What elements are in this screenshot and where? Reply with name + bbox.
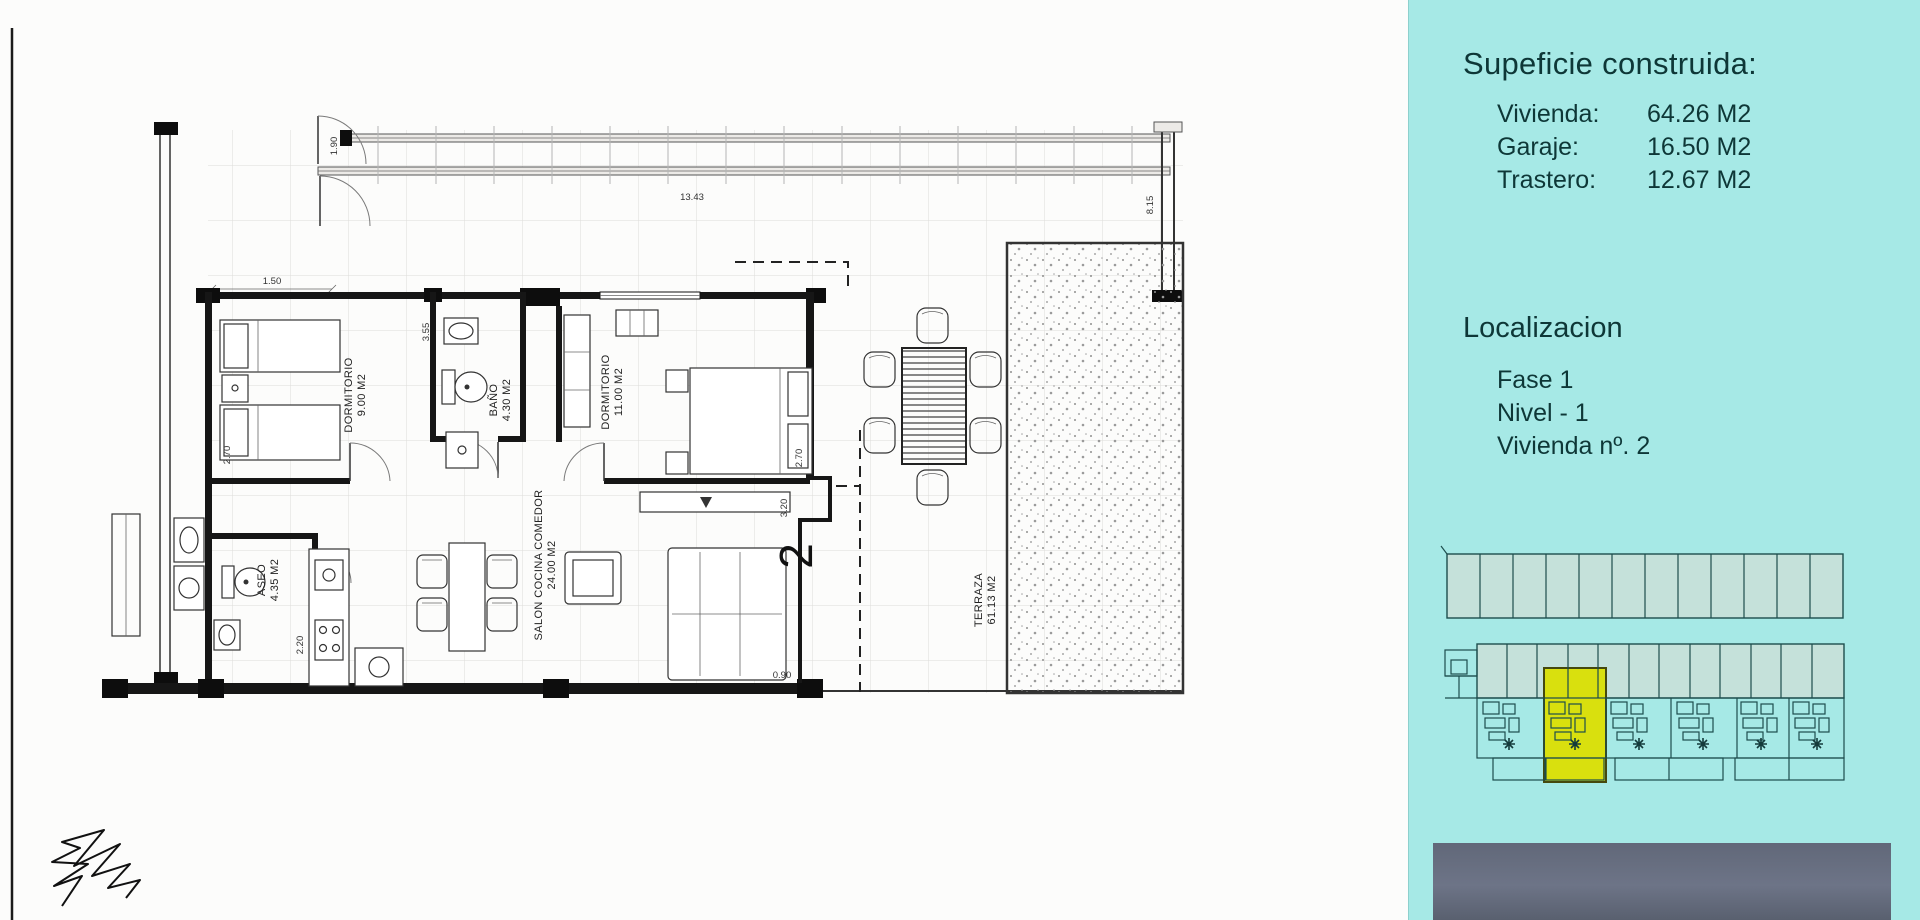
pool-area bbox=[1007, 243, 1183, 693]
floorplan-drawing: DORMITORIO 9.00 M2 BAÑO 4.30 M2 DORMITOR… bbox=[0, 0, 1410, 920]
sketch-scribble bbox=[52, 830, 140, 906]
dim-1-50: 1.50 bbox=[263, 276, 282, 287]
page: DORMITORIO 9.00 M2 BAÑO 4.30 M2 DORMITOR… bbox=[0, 0, 1920, 920]
surface-row-garaje: Garaje: 16.50 M2 bbox=[1497, 131, 1751, 164]
photo-thumbnail bbox=[1433, 843, 1891, 920]
svg-text:11.00 M2: 11.00 M2 bbox=[613, 368, 625, 416]
surface-value: 64.26 M2 bbox=[1647, 98, 1751, 131]
surface-value: 12.67 M2 bbox=[1647, 164, 1751, 197]
svg-text:61.13 M2: 61.13 M2 bbox=[986, 575, 998, 624]
info-sidebar: Supeficie construida: Vivienda: 64.26 M2… bbox=[1408, 0, 1920, 920]
svg-text:4.35 M2: 4.35 M2 bbox=[269, 559, 281, 602]
svg-text:ASEO: ASEO bbox=[256, 564, 268, 596]
surface-list: Vivienda: 64.26 M2 Garaje: 16.50 M2 Tras… bbox=[1497, 98, 1751, 197]
dim-1-90: 1.90 bbox=[329, 137, 340, 156]
room-label-aseo: ASEO 4.35 M2 bbox=[256, 559, 281, 602]
dim-0-90: 0.90 bbox=[773, 670, 792, 681]
svg-text:9.00 M2: 9.00 M2 bbox=[356, 374, 368, 417]
dim-2-70-right: 2.70 bbox=[794, 449, 805, 468]
surface-label: Garaje: bbox=[1497, 131, 1647, 164]
surface-label: Vivienda: bbox=[1497, 98, 1647, 131]
surface-title: Supeficie construida: bbox=[1463, 46, 1757, 82]
dim-8-15: 8.15 bbox=[1145, 196, 1156, 215]
svg-text:TERRAZA: TERRAZA bbox=[973, 573, 985, 627]
dim-3-55: 3.55 bbox=[421, 323, 432, 342]
svg-text:SALON COCINA COMEDOR: SALON COCINA COMEDOR bbox=[533, 489, 545, 640]
location-list: Fase 1 Nivel - 1 Vivienda nº. 2 bbox=[1497, 364, 1650, 463]
minimap-lower-garages bbox=[1477, 644, 1844, 698]
unit-number: 2 bbox=[770, 543, 822, 569]
surface-label: Trastero: bbox=[1497, 164, 1647, 197]
location-title: Localizacion bbox=[1463, 312, 1623, 345]
surface-value: 16.50 M2 bbox=[1647, 131, 1751, 164]
location-row-nivel: Nivel - 1 bbox=[1497, 397, 1650, 430]
location-row-vivienda: Vivienda nº. 2 bbox=[1497, 430, 1650, 463]
svg-text:2: 2 bbox=[770, 543, 822, 569]
room-label-terraza: TERRAZA 61.13 M2 bbox=[973, 573, 998, 627]
dim-13-43: 13.43 bbox=[680, 192, 704, 203]
site-minimap bbox=[1437, 543, 1857, 789]
dim-3-20: 3.20 bbox=[779, 499, 790, 518]
surface-row-trastero: Trastero: 12.67 M2 bbox=[1497, 164, 1751, 197]
svg-text:BAÑO: BAÑO bbox=[487, 384, 500, 417]
surface-row-vivienda: Vivienda: 64.26 M2 bbox=[1497, 98, 1751, 131]
location-row-fase: Fase 1 bbox=[1497, 364, 1650, 397]
svg-text:24.00 M2: 24.00 M2 bbox=[546, 540, 558, 589]
svg-text:DORMITORIO: DORMITORIO bbox=[600, 354, 612, 429]
dim-2-70-left: 2.70 bbox=[222, 446, 233, 465]
svg-text:DORMITORIO: DORMITORIO bbox=[343, 357, 355, 432]
dim-2-20: 2.20 bbox=[295, 636, 306, 655]
svg-text:4.30 M2: 4.30 M2 bbox=[501, 379, 513, 422]
